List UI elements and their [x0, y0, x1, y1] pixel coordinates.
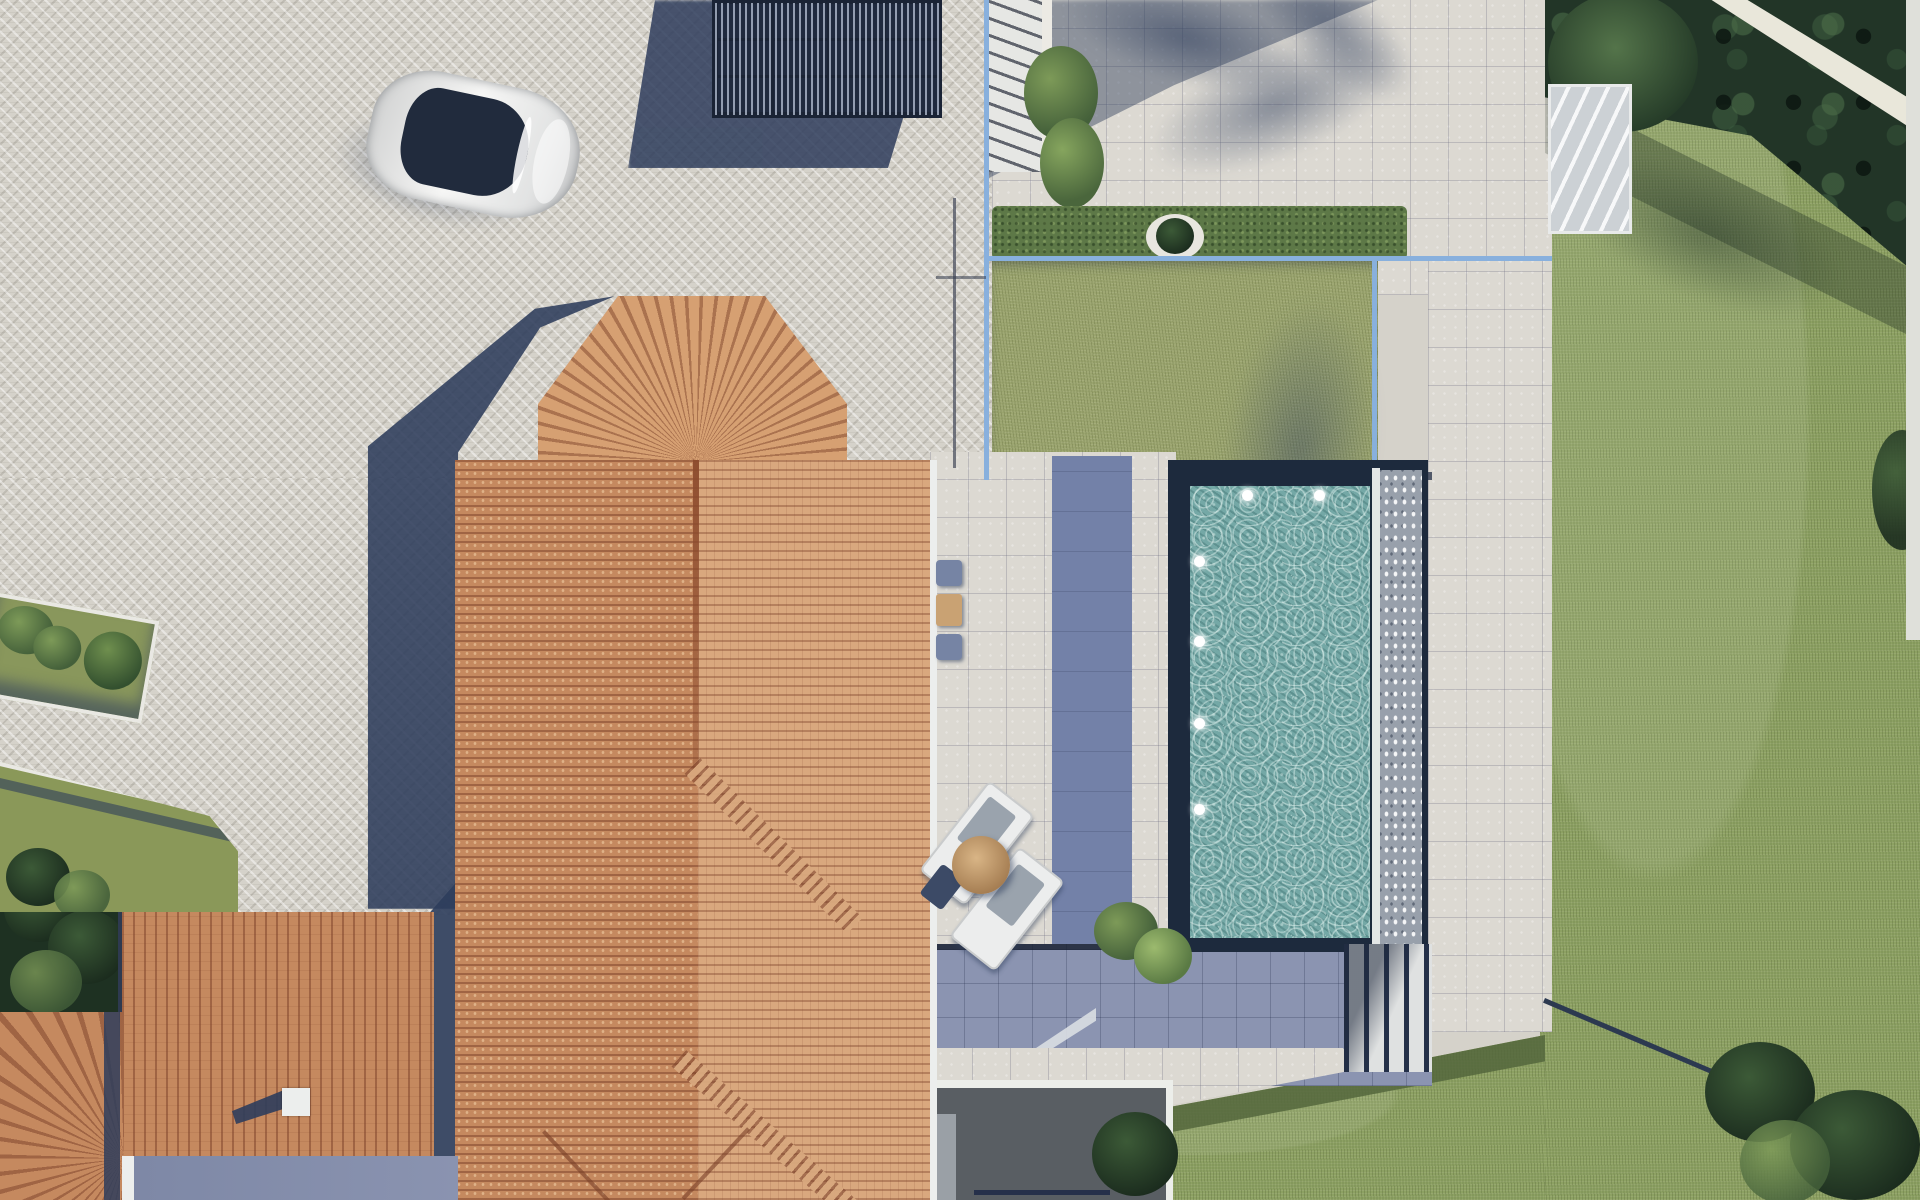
- pool-corner-bush-2: [1134, 928, 1192, 984]
- parasol: [952, 836, 1010, 894]
- corner-bushes-light: [1740, 1120, 1830, 1200]
- roof-ridge: [693, 460, 699, 770]
- side-terrace-curb: [122, 1156, 134, 1200]
- bay-roof: [455, 292, 937, 462]
- corner-terrace: [1548, 84, 1632, 234]
- balustrade-vertical-right: [1372, 256, 1377, 490]
- pool-edge-divider: [1372, 468, 1380, 944]
- bush-blob: [10, 950, 82, 1014]
- roof-east-slope: [698, 460, 937, 1200]
- roof-west-slope: [455, 460, 698, 1200]
- pool-overflow-deck: [1380, 470, 1422, 944]
- guest-roof: [118, 912, 434, 1160]
- chimney: [282, 1088, 310, 1116]
- bistro-chair: [936, 634, 962, 660]
- bistro-chair: [936, 560, 962, 586]
- balustrade-horizontal: [984, 256, 1552, 261]
- retaining-wall-line-2: [936, 276, 986, 279]
- pool-light: [1194, 636, 1205, 647]
- bottom-corner-bush: [1092, 1112, 1178, 1196]
- right-wall-sliver: [1906, 0, 1920, 640]
- pool-walkway: [1428, 256, 1552, 1032]
- pool-light: [1194, 804, 1205, 815]
- pool-light: [1314, 490, 1325, 501]
- garden-stairs-shadow: [1344, 944, 1432, 1072]
- pergola-canopy: [712, 0, 942, 118]
- retaining-wall-line: [953, 198, 956, 468]
- corner-roof-gap-shadow: [104, 1012, 120, 1200]
- terrace-tree-2: [1040, 118, 1104, 208]
- planter-tree: [79, 627, 146, 694]
- bottom-fence-line: [974, 1190, 1110, 1195]
- side-terrace-strip: [134, 1156, 458, 1200]
- main-villa-roof: [455, 292, 937, 1200]
- round-planter: [1146, 214, 1204, 260]
- pool-water: [1190, 486, 1370, 938]
- aerial-villa-scene: Top-down 3D rendering of a Mediterranean…: [0, 0, 1920, 1200]
- balustrade-vertical-left: [984, 0, 989, 480]
- bistro-table: [936, 594, 962, 626]
- pool-light: [1194, 556, 1205, 567]
- skylight-band: [1052, 456, 1132, 952]
- planter-plant: [1156, 218, 1194, 254]
- pool-light: [1242, 490, 1253, 501]
- pool-light: [1194, 718, 1205, 729]
